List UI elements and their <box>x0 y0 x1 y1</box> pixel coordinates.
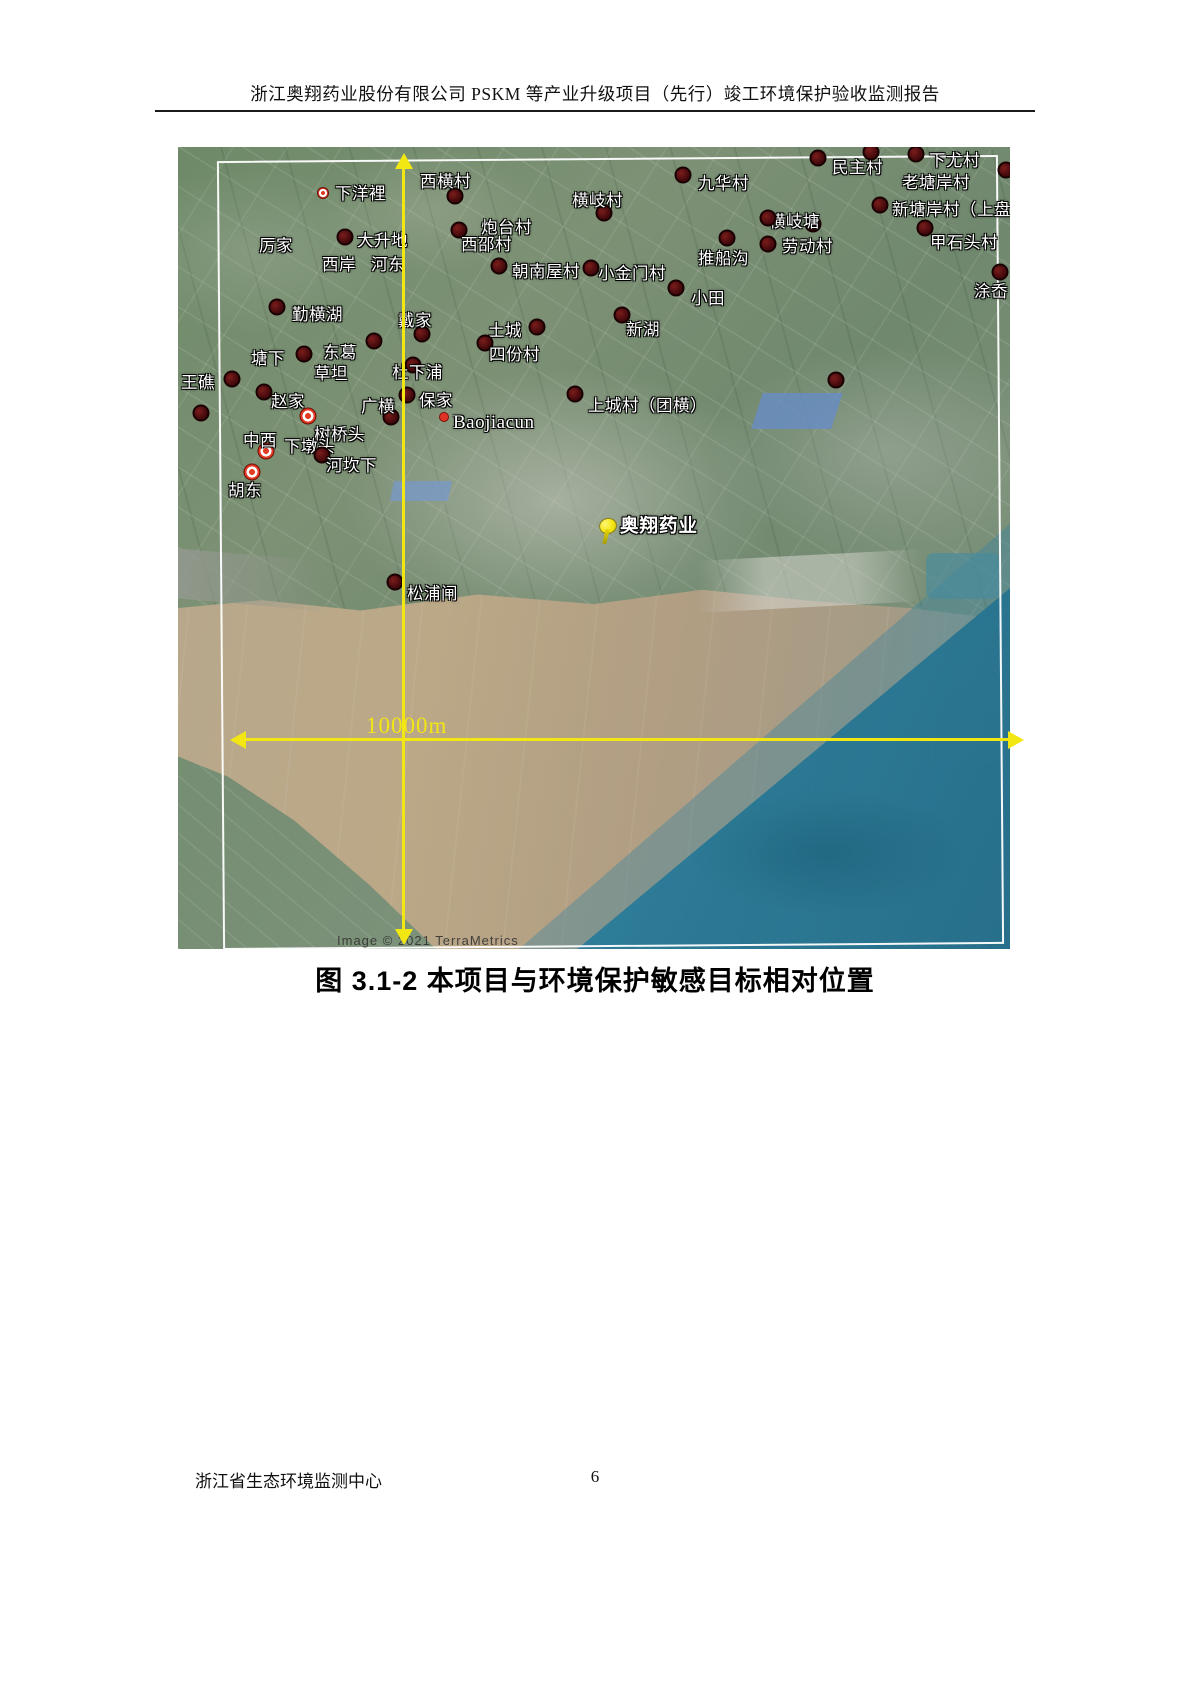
report-page: { "header": { "title": "浙江奥翔药业股份有限公司 PSK… <box>0 0 1190 1683</box>
footer-page-number: 6 <box>0 1467 1190 1487</box>
scale-distance-label: 10000m <box>366 713 447 739</box>
arrow-left-icon <box>230 731 246 749</box>
header-rule <box>155 110 1035 112</box>
measurement-overlay: 10000m <box>178 147 1010 949</box>
satellite-map-figure: 下洋裡西横村厉家大升地西岸河东炮台村西邵村横岐村九华村民主村下尤村老塘岸村新塘岸… <box>178 147 1010 949</box>
figure-caption: 图 3.1-2 本项目与环境保护敏感目标相对位置 <box>0 959 1190 998</box>
arrow-right-icon <box>1008 731 1024 749</box>
horizontal-measure-line <box>246 738 1010 741</box>
report-header-title: 浙江奥翔药业股份有限公司 PSKM 等产业升级项目（先行）竣工环境保护验收监测报… <box>0 81 1190 106</box>
arrow-down-icon <box>395 929 413 945</box>
arrow-up-icon <box>395 153 413 169</box>
vertical-measure-line <box>402 167 405 931</box>
